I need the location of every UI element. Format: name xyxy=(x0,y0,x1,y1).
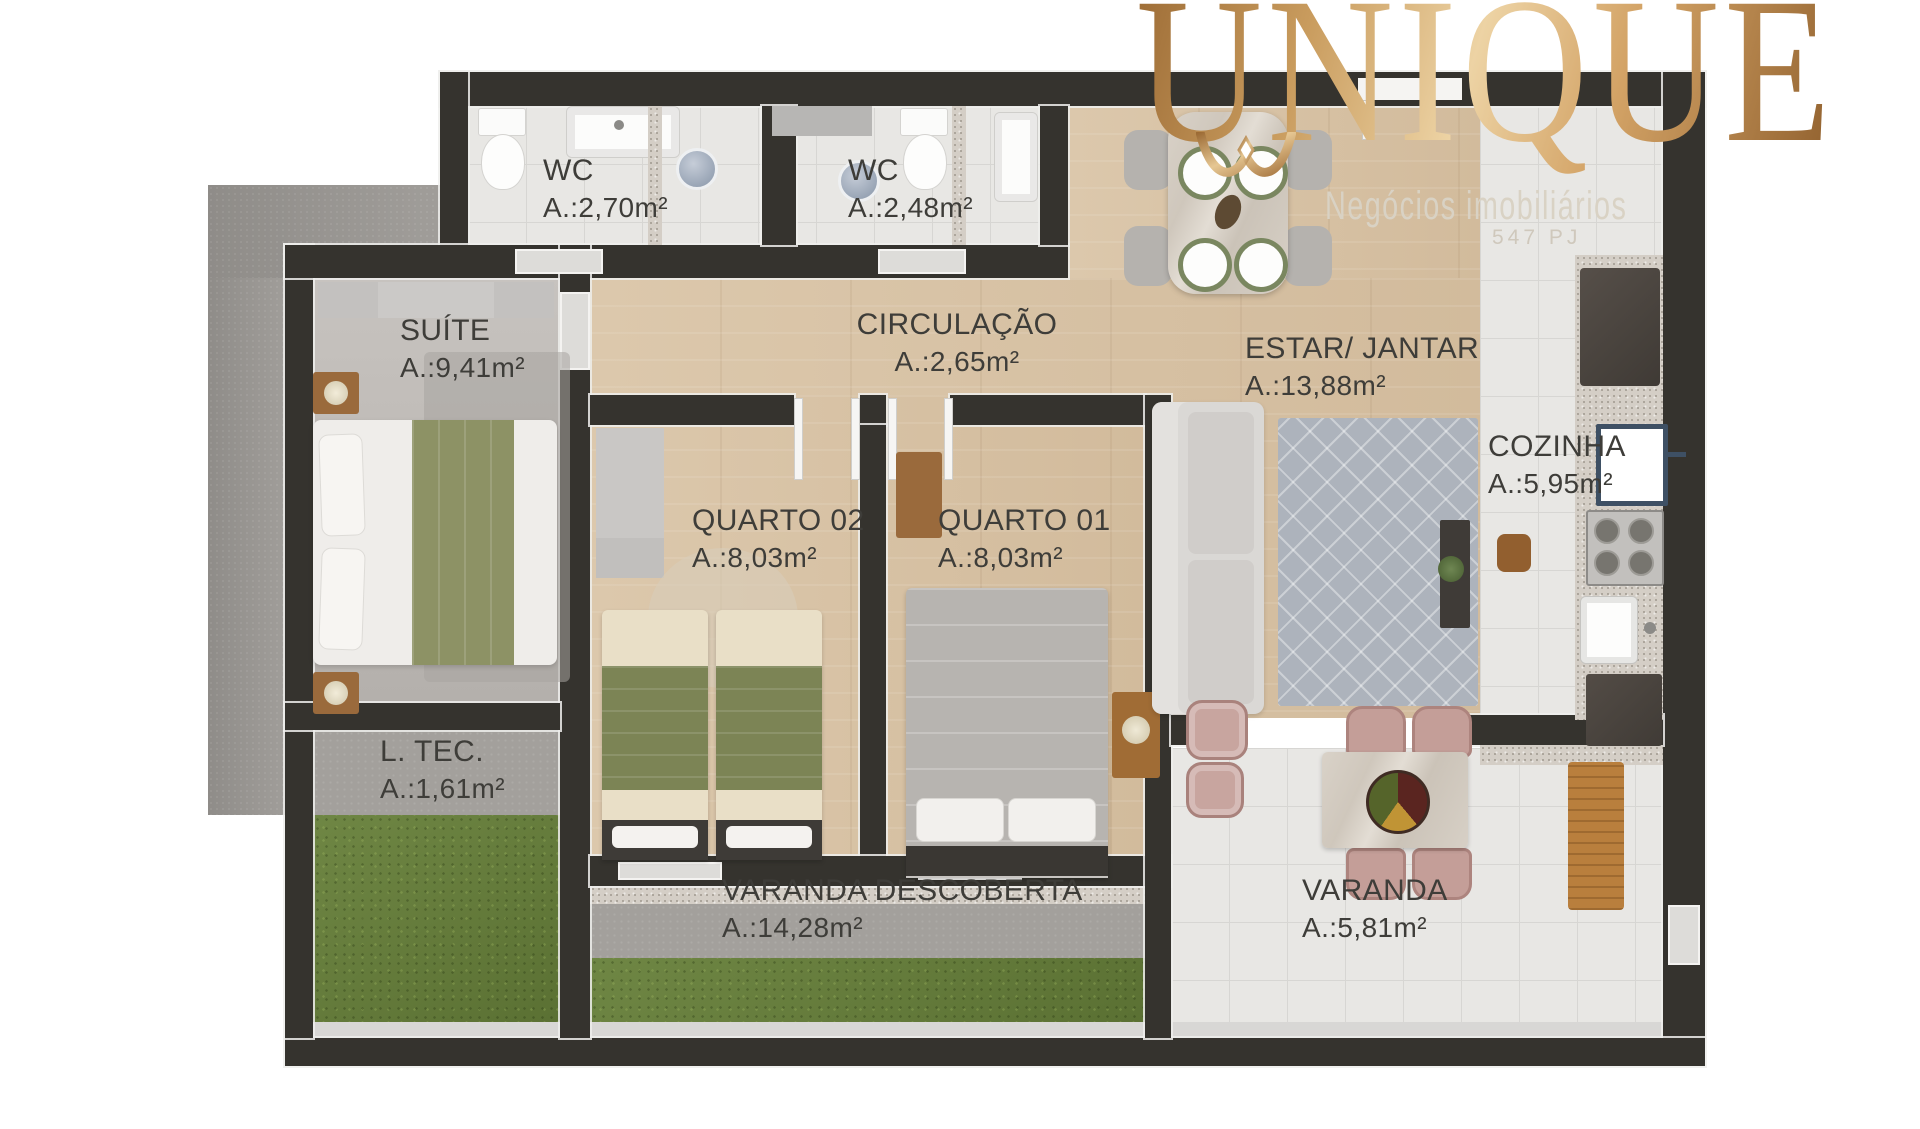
wall-left xyxy=(285,245,313,1038)
grass-right xyxy=(590,958,1145,1022)
wc2-area: A.:2,48m² xyxy=(848,189,973,226)
wc1-toilet xyxy=(478,108,526,136)
room-label-cozinha: COZINHA A.:5,95m² xyxy=(1488,428,1626,502)
suite-bed-blanket xyxy=(412,420,514,665)
varanda-wood-bench xyxy=(1568,762,1624,910)
door-post-quarto02-right xyxy=(851,398,860,480)
estar-sofa-cushion-2 xyxy=(1188,560,1254,704)
suite-lamp-bottom xyxy=(324,681,348,705)
estar-plant xyxy=(1438,556,1464,582)
dining-plate-4 xyxy=(1234,238,1288,292)
wall-bedrooms-north-a xyxy=(590,395,794,425)
circulacao-name: CIRCULAÇÃO xyxy=(807,306,1107,343)
room-label-varanda: VARANDA A.:5,81m² xyxy=(1302,872,1448,946)
quarto02-bed2-pillow xyxy=(726,826,812,848)
varanda-pouf-2 xyxy=(1186,762,1244,818)
kitchen-window-handle xyxy=(1664,452,1686,457)
varanda-pouf-1 xyxy=(1186,700,1248,760)
quarto01-name: QUARTO 01 xyxy=(938,502,1111,539)
suite-pillow-2 xyxy=(318,547,366,650)
quarto01-lamp xyxy=(1122,716,1150,744)
estar-sofa-cushion-1 xyxy=(1188,412,1254,554)
door-wc1 xyxy=(515,249,603,274)
room-label-quarto02: QUARTO 02 A.:8,03m² xyxy=(692,502,865,576)
bottom-light-band xyxy=(285,1022,1705,1038)
wall-bedrooms-north-c xyxy=(950,395,1145,425)
door-wc2 xyxy=(878,249,966,274)
suite-name: SUÍTE xyxy=(400,312,525,349)
wc1-area: A.:2,70m² xyxy=(543,189,668,226)
niche-over-wc2-door xyxy=(772,106,872,136)
wall-entry-west xyxy=(1040,106,1068,245)
door-post-quarto01-right xyxy=(944,398,953,480)
varanda-area: A.:5,81m² xyxy=(1302,909,1448,946)
varanda-name: VARANDA xyxy=(1302,872,1448,909)
dining-plate-3 xyxy=(1178,238,1232,292)
wc1-name: WC xyxy=(543,152,668,189)
room-label-suite: SUÍTE A.:9,41m² xyxy=(400,312,525,386)
room-label-ltec: L. TEC. A.:1,61m² xyxy=(380,733,505,807)
suite-area: A.:9,41m² xyxy=(400,349,525,386)
quarto02-name: QUARTO 02 xyxy=(692,502,865,539)
wall-right xyxy=(1663,72,1705,1038)
kitchen-cabinet-bottom xyxy=(1586,674,1662,746)
quarto02-area: A.:8,03m² xyxy=(692,539,865,576)
varanda-chair-2 xyxy=(1412,706,1472,758)
room-label-circulacao: CIRCULAÇÃO A.:2,65m² xyxy=(807,306,1107,380)
room-label-varanda-descoberta: VARANDA DESCOBERTA A.:14,28m² xyxy=(722,872,1083,946)
window-quarto02 xyxy=(618,862,722,880)
dining-chair-2 xyxy=(1124,226,1172,286)
kitchen-burner-3 xyxy=(1594,550,1620,576)
kitchen-stool xyxy=(1497,534,1531,572)
room-label-estar-jantar: ESTAR/ JANTAR A.:13,88m² xyxy=(1245,330,1479,404)
quarto02-wardrobe xyxy=(596,428,664,578)
kitchen-fridge xyxy=(1580,268,1660,386)
wc2-name: WC xyxy=(848,152,973,189)
suite-lamp-top xyxy=(324,381,348,405)
wc1-sink xyxy=(566,106,680,158)
wc2-toilet xyxy=(900,108,948,136)
wall-topleft-vertical xyxy=(440,72,468,245)
quarto01-area: A.:8,03m² xyxy=(938,539,1111,576)
room-label-wc1: WC A.:2,70m² xyxy=(543,152,668,226)
wc1-toilet-bowl xyxy=(481,134,525,190)
wc2-sink xyxy=(994,112,1038,202)
ltec-name: L. TEC. xyxy=(380,733,505,770)
kitchen-sink xyxy=(1580,596,1638,664)
ltec-area: A.:1,61m² xyxy=(380,770,505,807)
varanda-centerpiece xyxy=(1366,770,1430,834)
cozinha-area: A.:5,95m² xyxy=(1488,465,1626,502)
varanda-chair-1 xyxy=(1346,706,1406,758)
quarto02-bed2-blanket xyxy=(716,666,822,790)
brand-registration: 547 PJ xyxy=(1492,226,1581,250)
quarto01-pillow-right xyxy=(1008,798,1096,842)
dining-chair-4 xyxy=(1284,226,1332,286)
suite-pillow-1 xyxy=(318,433,366,536)
quarto02-bed1-pillow xyxy=(612,826,698,848)
room-label-wc2: WC A.:2,48m² xyxy=(848,152,973,226)
floor-plan-page: WC A.:2,70m² WC A.:2,48m² CIRCULAÇÃO A.:… xyxy=(0,0,1920,1129)
wc1-shower-head xyxy=(676,148,718,190)
varanda-descoberta-area: A.:14,28m² xyxy=(722,909,1083,946)
window-right-wall xyxy=(1668,905,1700,965)
estar-jantar-area: A.:13,88m² xyxy=(1245,367,1479,404)
outdoor-concrete-left-strip xyxy=(208,278,285,815)
wall-bedrooms-shared xyxy=(860,425,886,860)
cozinha-name: COZINHA xyxy=(1488,428,1626,465)
quarto01-pillow-left xyxy=(916,798,1004,842)
brand-subtitle: Negócios imobiliários xyxy=(1325,184,1627,229)
wall-bedrooms-north-b xyxy=(860,395,886,425)
quarto02-bed1-blanket xyxy=(602,666,708,790)
door-post-quarto02-left xyxy=(794,398,803,480)
brand-logo-ornament-icon xyxy=(1196,132,1296,202)
kitchen-faucet xyxy=(1644,622,1656,634)
room-label-quarto01: QUARTO 01 A.:8,03m² xyxy=(938,502,1111,576)
grass-left xyxy=(313,815,560,1022)
quarto01-dresser xyxy=(896,452,942,538)
kitchen-burner-1 xyxy=(1594,518,1620,544)
wall-bottom xyxy=(285,1038,1705,1066)
wc1-faucet xyxy=(614,120,624,130)
kitchen-burner-4 xyxy=(1628,550,1654,576)
circulacao-area: A.:2,65m² xyxy=(807,343,1107,380)
kitchen-burner-2 xyxy=(1628,518,1654,544)
varanda-descoberta-name: VARANDA DESCOBERTA xyxy=(722,872,1083,909)
estar-jantar-name: ESTAR/ JANTAR xyxy=(1245,330,1479,367)
